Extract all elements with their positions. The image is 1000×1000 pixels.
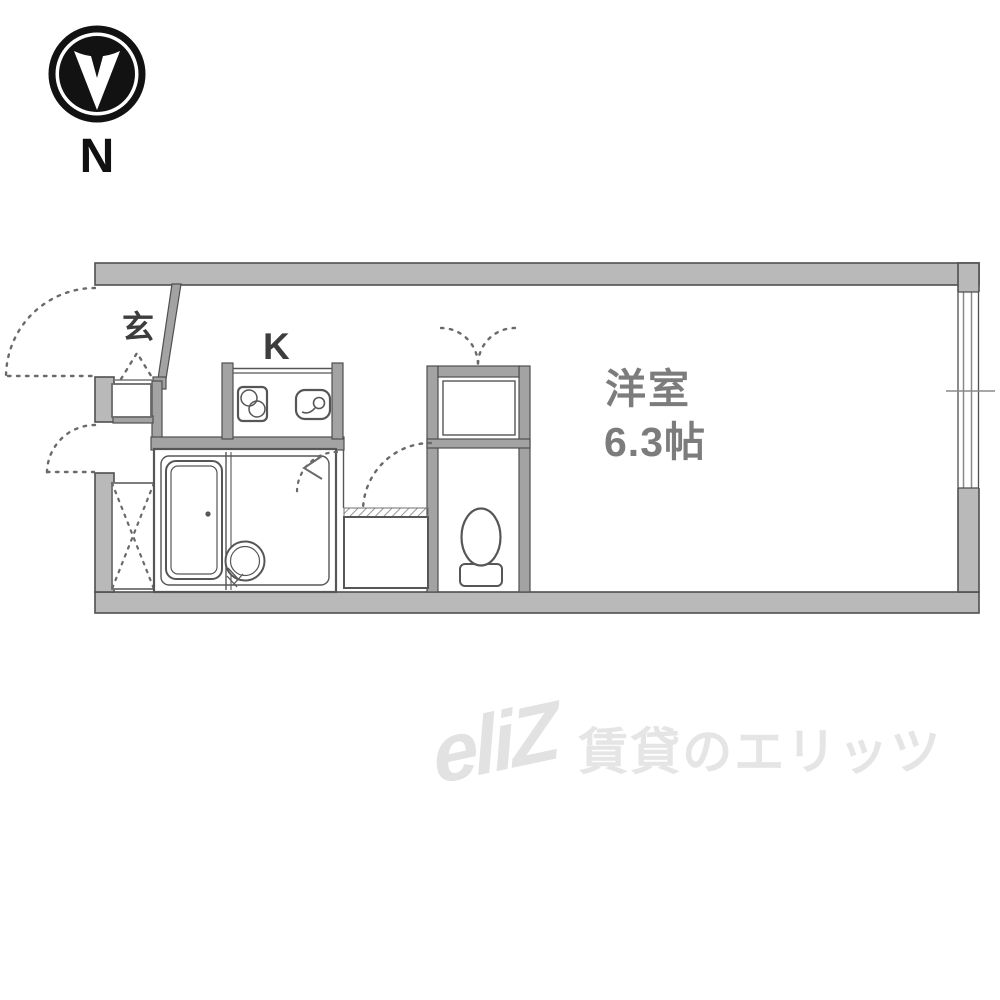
floor-plan-page: N <box>0 0 1000 1000</box>
room-name-label: 洋室 <box>605 366 691 412</box>
service-door-arc <box>47 425 95 473</box>
closet-door-arc-right <box>478 328 515 365</box>
toilet-room <box>460 509 502 587</box>
wall-bottom <box>95 592 979 613</box>
shoe-cabinet <box>112 384 151 417</box>
entrance-step-arrow <box>121 353 153 379</box>
closet-top-wall <box>438 366 519 377</box>
bathtub-icon <box>166 461 222 579</box>
north-compass-icon: N <box>52 29 142 183</box>
north-label: N <box>80 130 115 183</box>
wall-top <box>95 263 979 285</box>
unit-bath <box>154 449 337 592</box>
washing-door-arc <box>363 443 431 511</box>
toilet-tank <box>460 564 502 586</box>
kitchen-sink-icon <box>296 390 330 419</box>
entrance-diagonal-wall <box>158 284 181 379</box>
bath-door-knob <box>205 511 210 516</box>
washing-machine-space <box>344 443 431 588</box>
window-right-wall <box>946 292 995 488</box>
closet <box>441 328 515 435</box>
entrance-label: 玄 <box>122 309 154 345</box>
kitchen-post-left <box>222 363 233 439</box>
toilet-wall-right <box>519 366 530 592</box>
room-size-label: 6.3帖 <box>604 419 706 465</box>
entrance-door-arc <box>6 288 95 377</box>
stove-icon <box>238 387 267 421</box>
kitchen-label: K <box>263 326 290 367</box>
pipe-space <box>112 483 154 589</box>
toilet-icon <box>462 509 501 566</box>
floor-plan-canvas: N <box>0 0 1000 1000</box>
washing-space-hatch <box>344 508 428 517</box>
closet-door-arc-left <box>441 328 478 365</box>
closet-toilet-divider-wall <box>427 439 530 448</box>
kitchen-post-right <box>332 363 343 439</box>
